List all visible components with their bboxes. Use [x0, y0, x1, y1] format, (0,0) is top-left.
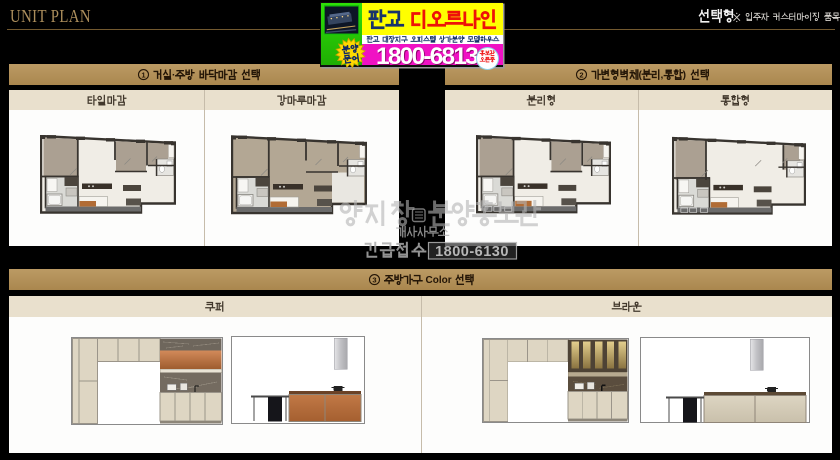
svg-text:1800-6130: 1800-6130 — [435, 244, 509, 260]
